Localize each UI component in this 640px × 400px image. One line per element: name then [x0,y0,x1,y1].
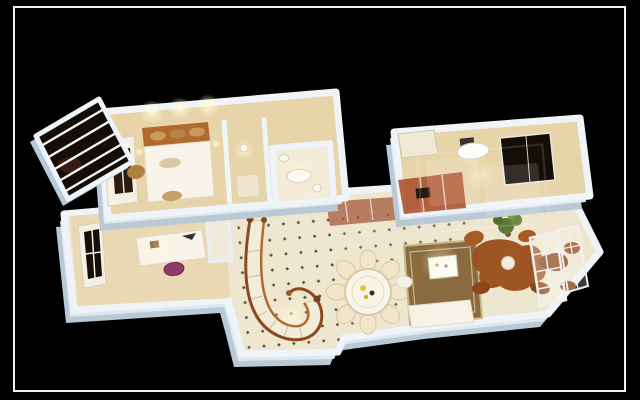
toilet [313,184,321,192]
bed [134,122,221,202]
floorplan-render [0,0,640,400]
sink [279,155,289,162]
sun-room [530,226,588,306]
floor-lamp [240,144,248,152]
coffee-table [502,257,515,270]
floorplan-photo [0,0,640,400]
living-room [396,240,482,328]
dining-set [326,250,410,334]
bathroom [272,143,334,205]
armchair [396,276,412,288]
